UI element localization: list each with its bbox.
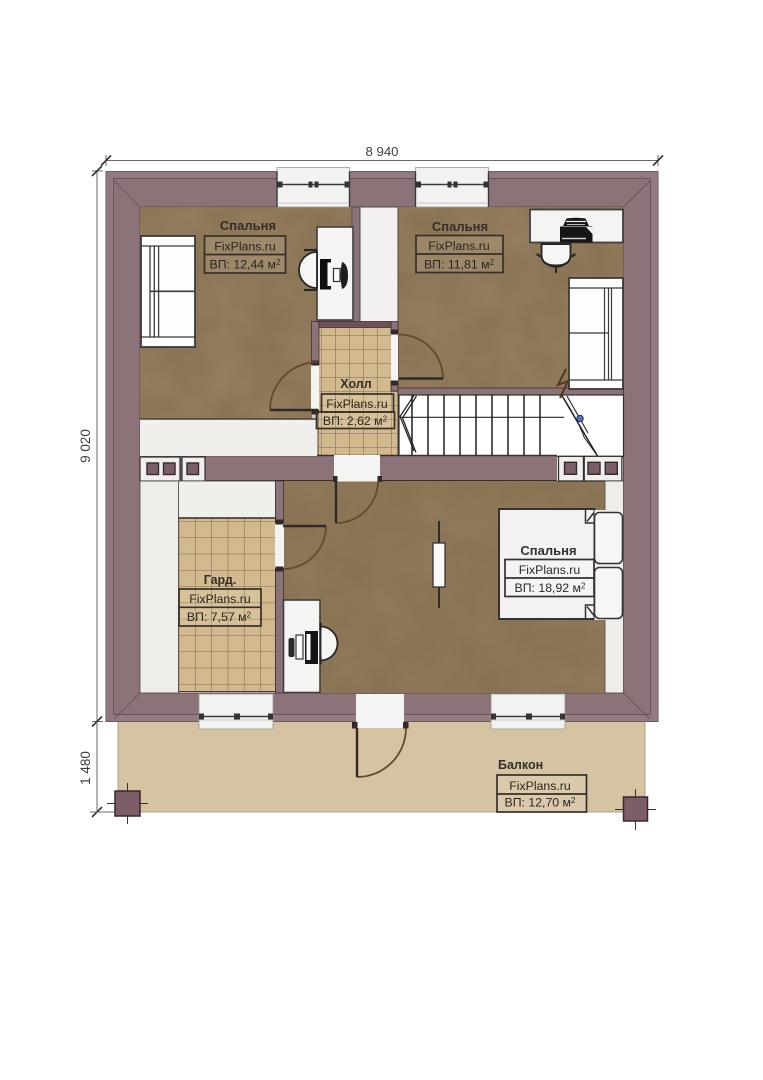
svg-text:ВП: 2,62 м2: ВП: 2,62 м2: [323, 414, 388, 428]
svg-text:FixPlans.ru: FixPlans.ru: [326, 397, 388, 411]
svg-text:FixPlans.ru: FixPlans.ru: [428, 239, 490, 253]
svg-text:ВП: 12,70 м2: ВП: 12,70 м2: [505, 796, 577, 810]
svg-text:Гард.: Гард.: [204, 573, 237, 587]
svg-text:ВП: 12,44 м2: ВП: 12,44 м2: [210, 258, 282, 272]
svg-text:Спальня: Спальня: [220, 218, 276, 233]
svg-text:Спальня: Спальня: [432, 219, 488, 234]
svg-text:FixPlans.ru: FixPlans.ru: [214, 240, 276, 254]
svg-text:FixPlans.ru: FixPlans.ru: [519, 563, 581, 577]
svg-text:FixPlans.ru: FixPlans.ru: [509, 779, 571, 793]
svg-text:ВП: 11,81 м2: ВП: 11,81 м2: [424, 258, 495, 272]
svg-text:Балкон: Балкон: [498, 758, 543, 772]
svg-text:1 480: 1 480: [78, 751, 93, 785]
svg-text:FixPlans.ru: FixPlans.ru: [189, 592, 251, 606]
svg-text:ВП: 18,92 м2: ВП: 18,92 м2: [515, 581, 587, 595]
svg-text:ВП: 7,57 м2: ВП: 7,57 м2: [187, 610, 252, 624]
svg-text:9 020: 9 020: [78, 429, 93, 463]
svg-text:Спальня: Спальня: [520, 543, 576, 558]
svg-text:Холл: Холл: [340, 377, 371, 391]
svg-text:8 940: 8 940: [365, 144, 398, 159]
